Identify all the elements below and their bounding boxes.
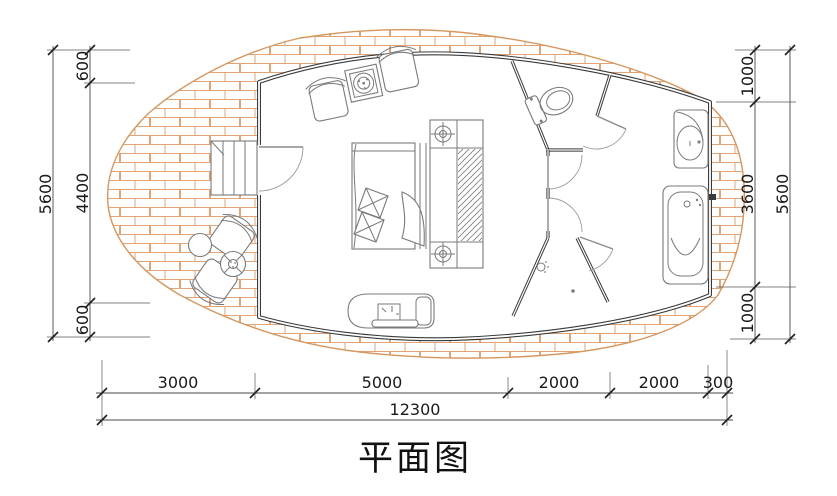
dim-bottom-seg-3: 2000	[539, 373, 580, 392]
dim-left-overall: 5600	[36, 174, 55, 215]
dim-right-seg-1: 1000	[738, 56, 757, 97]
dim-left-seg-2: 4400	[73, 173, 92, 214]
dim-left-seg-1: 600	[73, 51, 92, 82]
wardrobe	[458, 149, 482, 241]
dim-right-seg-3: 1000	[738, 293, 757, 334]
double-bed	[352, 143, 426, 249]
dim-bottom-seg-5: 300	[703, 373, 734, 392]
outdoor-umbrella-table	[221, 252, 246, 277]
dim-bottom-overall: 12300	[390, 400, 441, 419]
dim-bottom-seg-4: 2000	[639, 373, 680, 392]
dim-left-seg-3: 600	[73, 305, 92, 336]
dim-right-overall: 5600	[773, 174, 792, 215]
page-title: 平面图	[358, 439, 472, 479]
tv-counter	[348, 294, 434, 328]
dimension-bottom: 3000 5000 2000 2000 300 12300	[96, 350, 733, 426]
wash-basin	[674, 110, 708, 168]
dim-bottom-seg-1: 3000	[158, 373, 199, 392]
dim-right-seg-2: 3600	[738, 174, 757, 215]
wall-block	[708, 194, 716, 200]
entry-stairs	[211, 141, 257, 195]
floor-plan-canvas: 5600 600 4400 600 1000 3600 1000 5600 30…	[0, 0, 837, 496]
bathtub	[663, 186, 708, 284]
outdoor-stool	[189, 234, 212, 257]
dim-bottom-seg-2: 5000	[362, 373, 403, 392]
plant-side-table	[345, 64, 383, 102]
